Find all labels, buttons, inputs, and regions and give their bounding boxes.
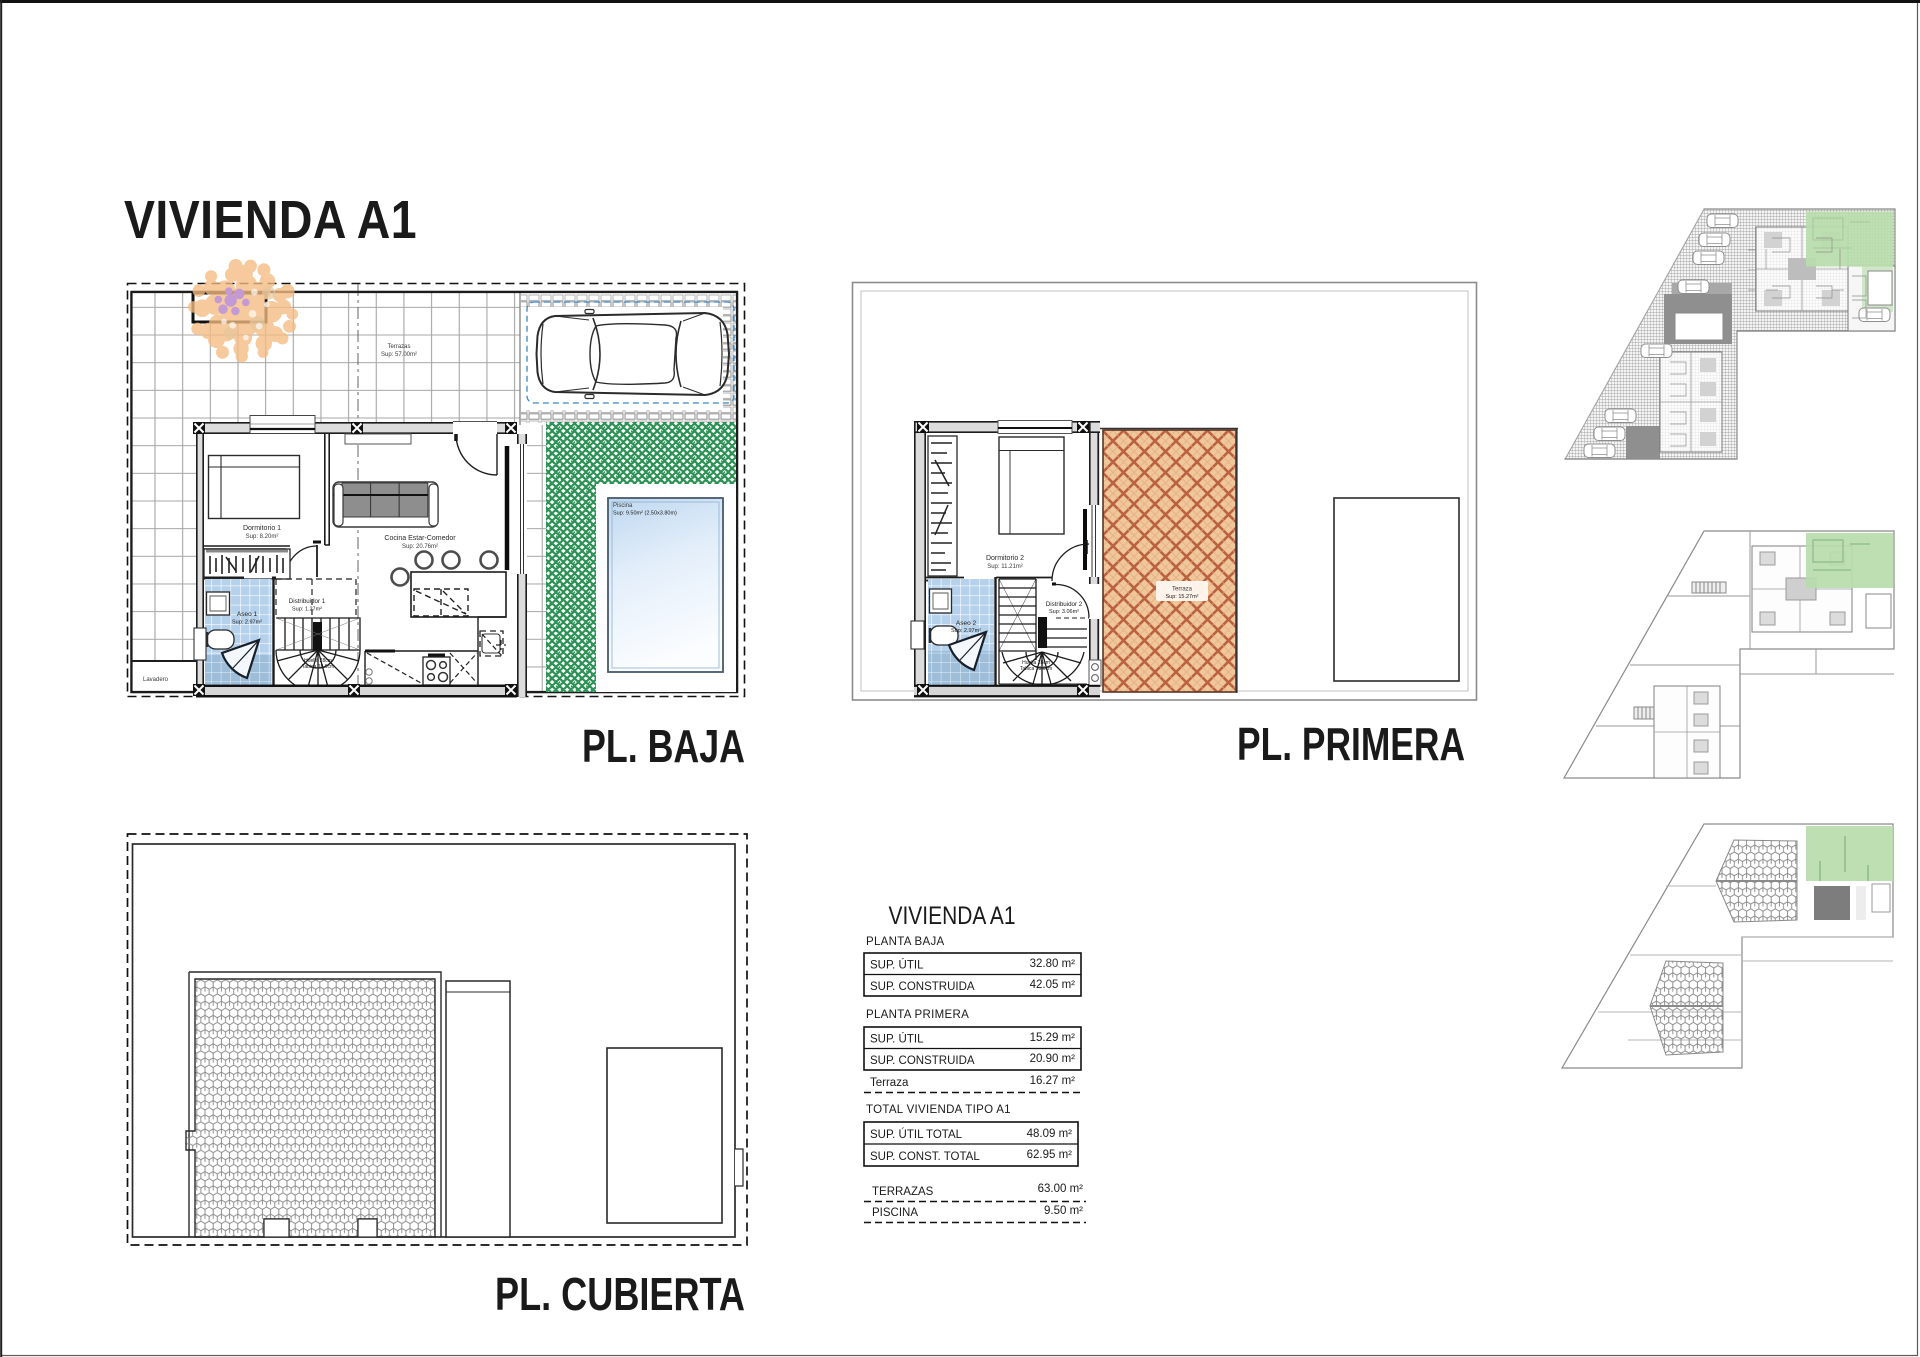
svg-text:Terraza: Terraza [870, 1077, 909, 1089]
svg-text:Tabica 18.6cm: Tabica 18.6cm [1020, 666, 1052, 672]
svg-text:PISCINA: PISCINA [872, 1207, 918, 1219]
svg-text:Piscina: Piscina [613, 503, 633, 509]
svg-text:SUP. ÚTIL: SUP. ÚTIL [870, 1033, 924, 1046]
svg-text:PLANTA BAJA: PLANTA BAJA [866, 936, 945, 948]
svg-text:VIVIENDA A1: VIVIENDA A1 [889, 902, 1016, 930]
svg-text:Sup: 2.97m²: Sup: 2.97m² [951, 628, 981, 634]
svg-text:PL. CUBIERTA: PL. CUBIERTA [495, 1268, 745, 1320]
svg-text:Sup: 3.06m²: Sup: 3.06m² [1049, 609, 1079, 615]
svg-text:48.09 m²: 48.09 m² [1027, 1128, 1073, 1140]
svg-text:9.50 m²: 9.50 m² [1044, 1205, 1083, 1217]
svg-text:Sup: 1.27m²: Sup: 1.27m² [292, 607, 322, 613]
svg-text:Cocina Estar-Comedor: Cocina Estar-Comedor [384, 535, 456, 542]
svg-text:Dormitorio 1: Dormitorio 1 [243, 525, 281, 532]
svg-text:SUP. ÚTIL: SUP. ÚTIL [870, 959, 924, 972]
svg-text:Sup: 9.50m² (2.50x3.80m): Sup: 9.50m² (2.50x3.80m) [613, 511, 677, 517]
svg-text:PL. PRIMERA: PL. PRIMERA [1237, 718, 1465, 770]
svg-text:SUP. CONST. TOTAL: SUP. CONST. TOTAL [870, 1151, 980, 1163]
svg-text:Aseo 1: Aseo 1 [237, 611, 258, 618]
svg-text:TOTAL VIVIENDA TIPO A1: TOTAL VIVIENDA TIPO A1 [866, 1104, 1011, 1116]
svg-text:Sup: 8.20m²: Sup: 8.20m² [246, 534, 279, 540]
svg-text:16.27 m²: 16.27 m² [1030, 1075, 1076, 1087]
svg-text:15.29 m²: 15.29 m² [1030, 1032, 1076, 1044]
svg-text:VIVIENDA A1: VIVIENDA A1 [124, 190, 417, 250]
svg-text:20.90 m²: 20.90 m² [1030, 1053, 1076, 1065]
svg-text:Dormitorio 2: Dormitorio 2 [986, 555, 1024, 562]
svg-text:Tabica 18.6cm: Tabica 18.6cm [302, 664, 334, 670]
svg-text:Sup: 15.27m²: Sup: 15.27m² [1165, 594, 1198, 600]
svg-text:Sup: 57.00m²: Sup: 57.00m² [381, 352, 417, 358]
svg-text:62.95 m²: 62.95 m² [1027, 1149, 1073, 1161]
svg-text:Sup: 11.21m²: Sup: 11.21m² [987, 564, 1023, 570]
svg-text:SUP. ÚTIL TOTAL: SUP. ÚTIL TOTAL [870, 1128, 963, 1141]
svg-text:Sup: 20.76m²: Sup: 20.76m² [402, 544, 438, 550]
svg-text:Distribuidor 2: Distribuidor 2 [1046, 601, 1083, 608]
svg-text:32.80 m²: 32.80 m² [1030, 958, 1076, 970]
svg-text:42.05 m²: 42.05 m² [1030, 979, 1076, 991]
svg-text:Distribuidor 1: Distribuidor 1 [289, 598, 326, 605]
svg-text:Aseo 2: Aseo 2 [956, 620, 977, 627]
svg-text:Terraza: Terraza [1172, 587, 1193, 593]
svg-text:Sup: 2.97m²: Sup: 2.97m² [232, 620, 262, 626]
svg-text:Lavadero: Lavadero [143, 677, 169, 683]
svg-text:SUP. CONSTRUIDA: SUP. CONSTRUIDA [870, 1055, 975, 1067]
svg-text:SUP. CONSTRUIDA: SUP. CONSTRUIDA [870, 981, 975, 993]
svg-text:PL. BAJA: PL. BAJA [582, 720, 745, 772]
svg-text:63.00 m²: 63.00 m² [1038, 1183, 1084, 1195]
svg-text:TERRAZAS: TERRAZAS [872, 1186, 934, 1198]
svg-text:Terrazas: Terrazas [387, 344, 410, 350]
svg-text:PLANTA PRIMERA: PLANTA PRIMERA [866, 1009, 969, 1021]
